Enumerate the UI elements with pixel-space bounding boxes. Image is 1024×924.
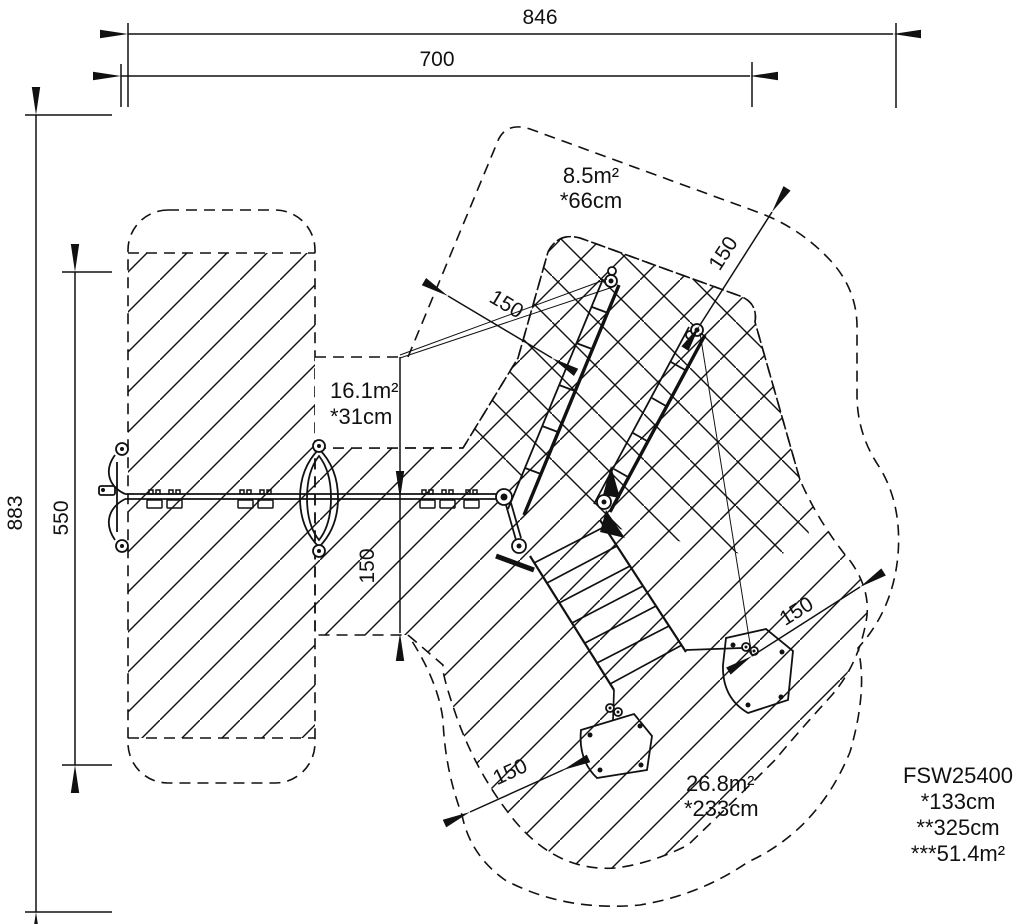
clearance-label-vertical: 150 bbox=[356, 548, 379, 583]
dim-label-height-total: 883 bbox=[4, 495, 27, 530]
upper-zone-fall-height: *66cm bbox=[560, 188, 622, 213]
dim-label-width-total: 846 bbox=[522, 6, 557, 29]
upper-zone-area: 8.5m² bbox=[563, 163, 619, 188]
dim-label-width-inner: 700 bbox=[419, 48, 454, 71]
middle-zone-fall-height: *31cm bbox=[330, 404, 392, 429]
plan-drawing-canvas: 846 700 883 550 150 150 150 150 150 8.5m… bbox=[0, 0, 1024, 924]
swing-end-frame bbox=[99, 443, 128, 552]
product-fall-height: *133cm bbox=[921, 789, 996, 814]
technical-drawing-page: 846 700 883 550 150 150 150 150 150 8.5m… bbox=[0, 0, 1024, 924]
lower-zone-fall-height: *233cm bbox=[684, 796, 759, 821]
lower-zone-area: 26.8m² bbox=[686, 771, 754, 796]
swing-zone-hatch bbox=[128, 253, 315, 738]
product-total-area: ***51.4m² bbox=[911, 841, 1005, 866]
product-model: FSW25400 bbox=[903, 763, 1013, 788]
safety-zones bbox=[128, 127, 899, 906]
dim-label-height-inner: 550 bbox=[50, 500, 73, 535]
product-info-block: FSW25400 *133cm **325cm ***51.4m² bbox=[903, 763, 1013, 866]
product-total-height: **325cm bbox=[916, 815, 999, 840]
middle-zone-area: 16.1m² bbox=[330, 378, 398, 403]
